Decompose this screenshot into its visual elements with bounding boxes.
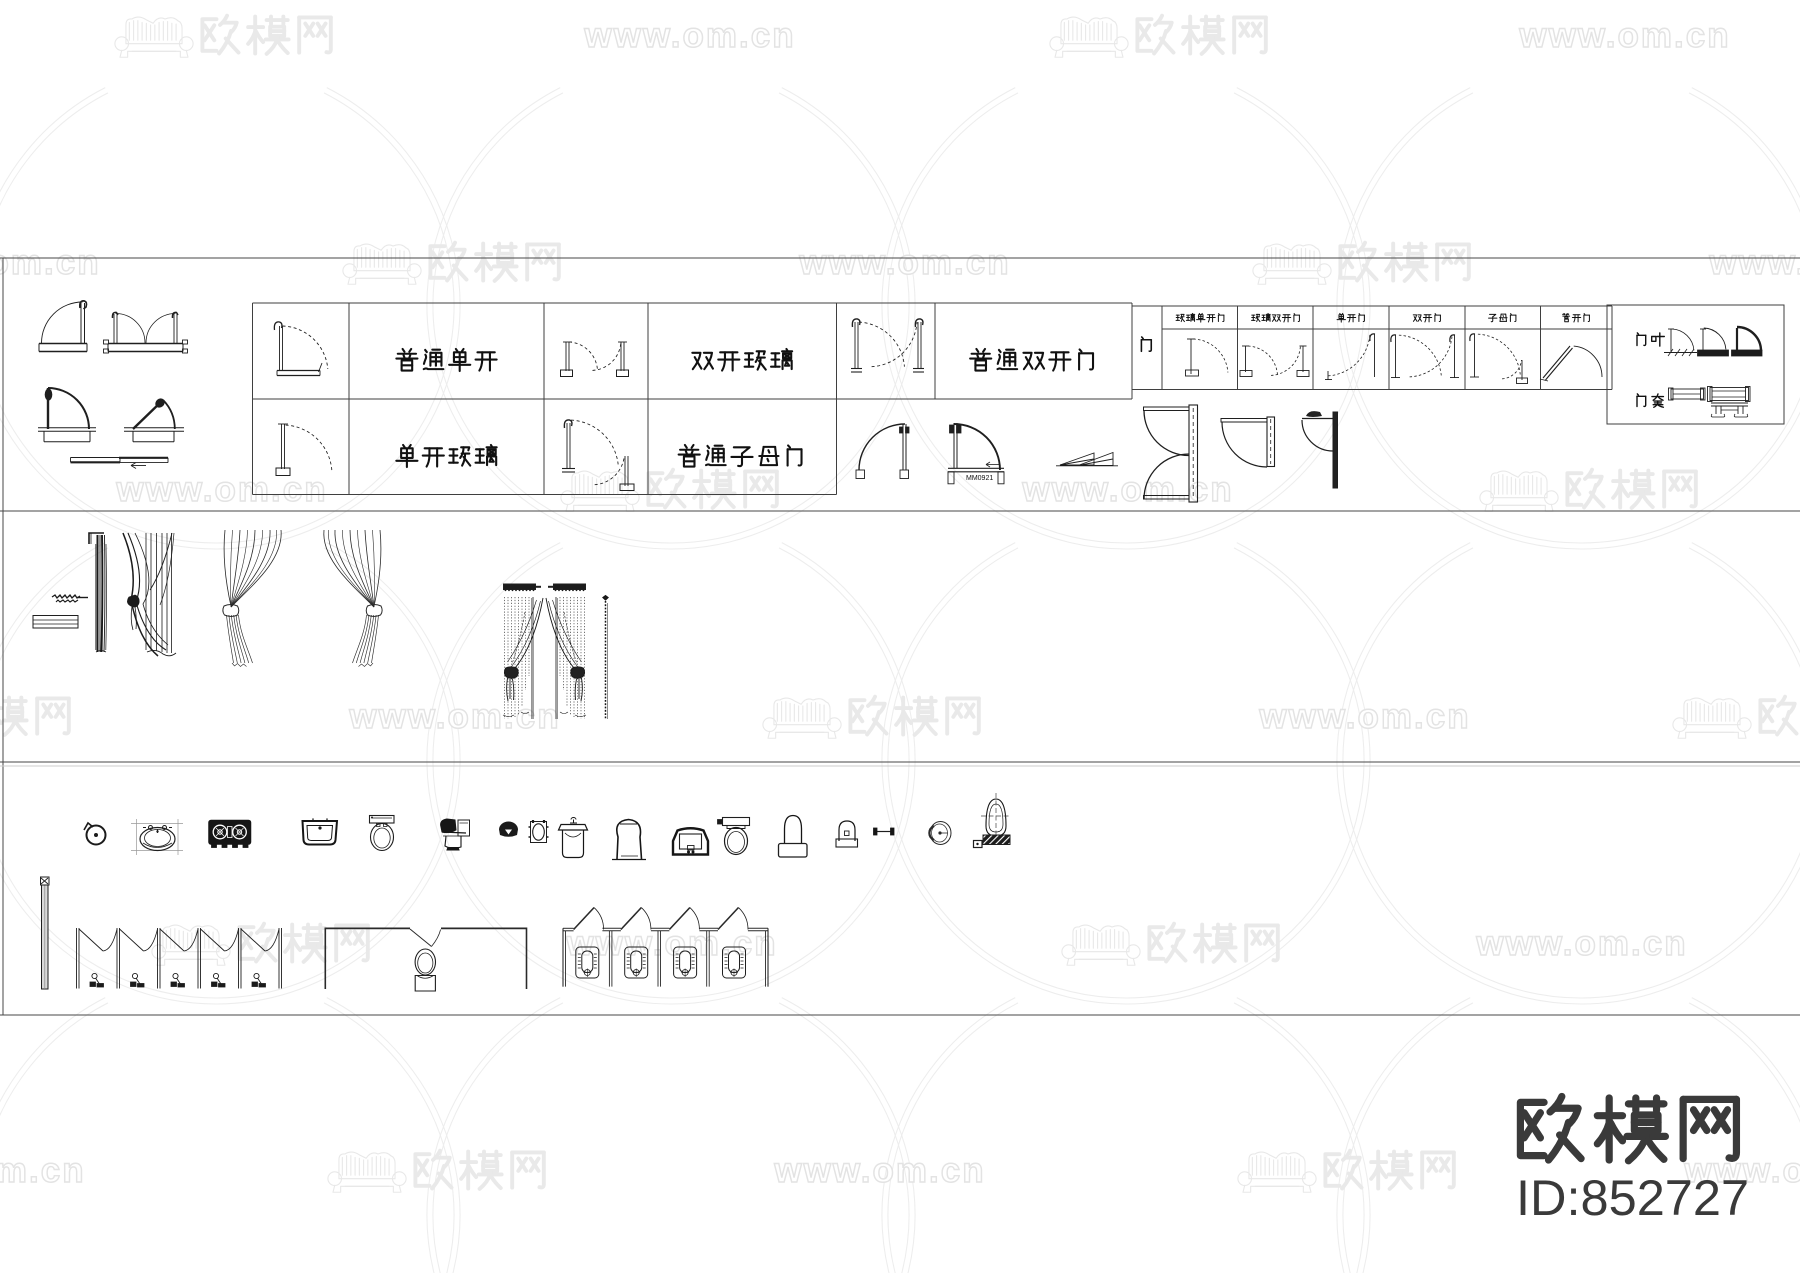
svg-text:www.om.cn: www.om.cn — [0, 1151, 86, 1190]
svg-text:www.om.cn: www.om.cn — [115, 470, 327, 509]
svg-text:www.om.cn: www.om.cn — [1475, 924, 1687, 963]
svg-text:ID:852727: ID:852727 — [1516, 1169, 1749, 1226]
svg-text:MM0921: MM0921 — [966, 475, 993, 482]
svg-text:www.om.cn: www.om.cn — [583, 16, 795, 55]
svg-text:www.om.cn: www.om.cn — [1708, 243, 1800, 282]
svg-text:www.om.cn: www.om.cn — [773, 1151, 985, 1190]
svg-text:www.om.cn: www.om.cn — [348, 697, 560, 736]
svg-text:www.om.cn: www.om.cn — [798, 243, 1010, 282]
svg-text:www.om.cn: www.om.cn — [1021, 470, 1233, 509]
svg-text:www.om.cn: www.om.cn — [0, 243, 101, 282]
svg-text:www.om.cn: www.om.cn — [1258, 697, 1470, 736]
svg-text:www.om.cn: www.om.cn — [1518, 16, 1730, 55]
